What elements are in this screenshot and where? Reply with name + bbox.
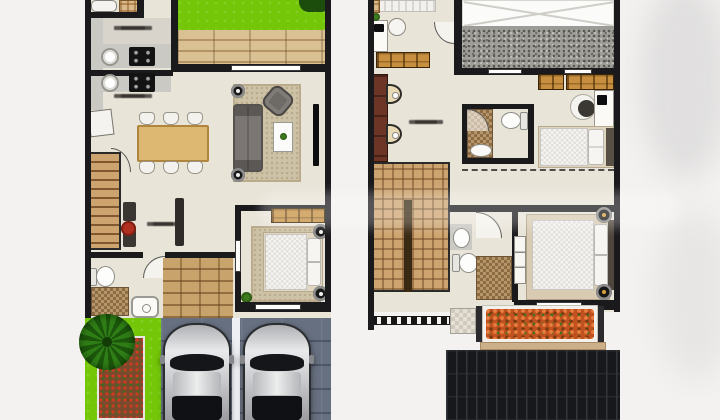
car-windshield [170, 354, 224, 371]
watermark [260, 192, 680, 228]
wall [528, 104, 534, 164]
carport-divider [232, 318, 240, 420]
bed-pillows [307, 238, 321, 286]
kitchen-counter [91, 18, 103, 110]
car-mirror [229, 355, 234, 363]
wood-deck [177, 30, 325, 66]
tv-console [313, 104, 319, 166]
nightstand [596, 284, 612, 300]
planter-ledge [480, 342, 606, 350]
stair-railing [370, 316, 450, 325]
dining-chair [139, 161, 155, 174]
window [488, 69, 522, 74]
stove [129, 47, 155, 66]
bed-mattress [265, 234, 307, 290]
skylight-void [462, 0, 614, 27]
lower-roof-texture [462, 29, 614, 69]
window [231, 65, 301, 71]
dining-chair [139, 112, 155, 125]
hall-bench [123, 202, 136, 221]
wardrobe [538, 74, 564, 90]
wall [462, 158, 534, 164]
dry-kitchen-label [109, 94, 157, 108]
wardrobe [566, 74, 614, 90]
computer-monitor [374, 24, 384, 32]
bathroom-sink [453, 228, 470, 248]
outer-wall [368, 0, 374, 330]
upper-hall-label [404, 120, 448, 136]
outer-wall [325, 0, 331, 312]
powder-room-floor [91, 287, 129, 316]
wet-kitchen-label [109, 26, 157, 40]
dining-chair [187, 112, 203, 125]
desk-chair [578, 100, 595, 117]
foyer-label [143, 222, 183, 236]
bed-mattress [540, 128, 588, 166]
car-rear-window [172, 396, 222, 420]
bed-mattress [532, 220, 594, 290]
bed-mattress [378, 0, 436, 12]
roof-outline-dashed [462, 169, 614, 171]
side-table [231, 84, 245, 98]
car-roof [253, 372, 302, 395]
pedestal-sink [470, 144, 492, 157]
bed-pillows [594, 224, 608, 286]
kitchen-sink [101, 74, 119, 92]
toilet-tank [520, 112, 528, 130]
car-mirror [160, 355, 165, 363]
sofa [233, 104, 263, 172]
toilet-bowl [501, 112, 521, 129]
floorplan-image [0, 0, 720, 420]
kitchen-sink [101, 48, 119, 66]
car-windshield [250, 354, 304, 371]
palm-tree [79, 314, 135, 370]
round-rug [121, 221, 136, 236]
car-rear-window [252, 396, 302, 420]
toilet-bowl [96, 266, 115, 287]
roof-tiles [446, 350, 620, 420]
planter-flowers [486, 309, 594, 339]
balcony-tiles [450, 308, 476, 334]
outer-wall [85, 0, 91, 318]
desk-chair [388, 18, 406, 36]
shower-base [131, 296, 159, 318]
computer-monitor [597, 95, 607, 105]
car-mirror [309, 355, 314, 363]
dining-chair [187, 161, 203, 174]
window [255, 304, 301, 310]
wardrobe [514, 236, 526, 284]
car-roof [173, 372, 222, 395]
outer-wall [614, 0, 620, 312]
wardrobe [376, 52, 430, 68]
refrigerator [88, 109, 115, 138]
wall [454, 0, 462, 72]
marble-shade [640, 0, 720, 180]
car [243, 323, 311, 420]
wall [137, 0, 144, 19]
window [235, 240, 241, 272]
table-plant [280, 133, 287, 140]
bed-pillows [588, 129, 604, 165]
marble-shade [655, 210, 720, 380]
wall [171, 0, 178, 72]
wall [85, 252, 143, 258]
dining-chair [163, 112, 179, 125]
bathtub [91, 0, 117, 12]
bed-headboard [606, 128, 614, 166]
stove [129, 73, 155, 92]
side-table [231, 168, 245, 182]
car-mirror [240, 355, 245, 363]
car [163, 323, 231, 420]
entry-porch-tiles [163, 258, 233, 318]
dining-chair [163, 161, 179, 174]
bathroom-floor [476, 256, 512, 300]
dining-table [137, 125, 209, 162]
